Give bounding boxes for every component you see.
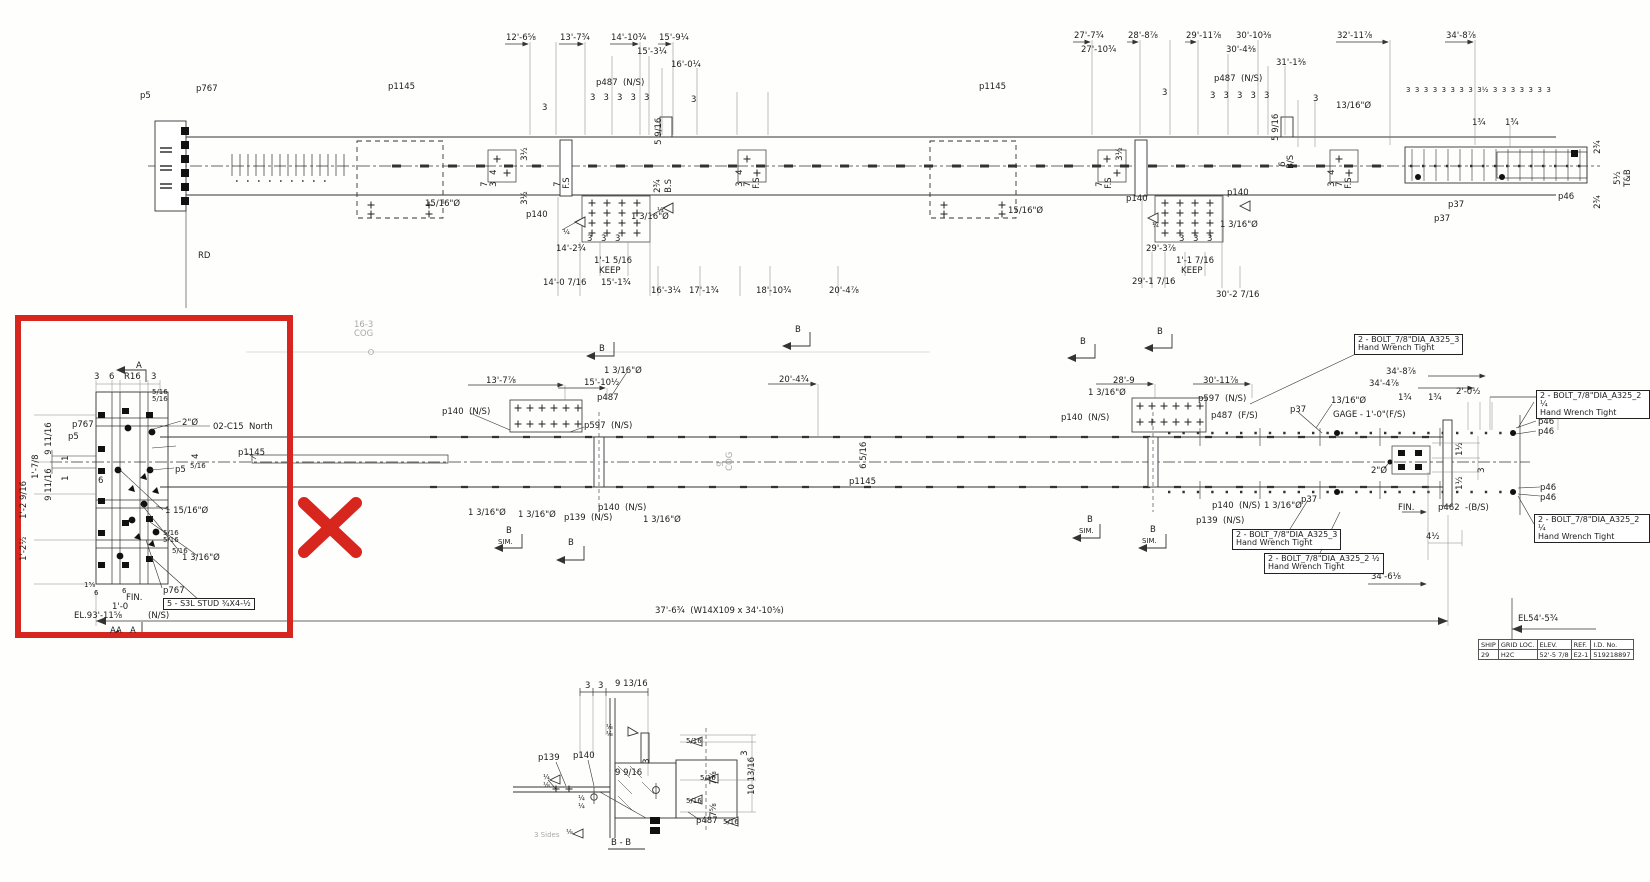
drawing-label: B xyxy=(1080,338,1086,347)
drawing-label: B xyxy=(506,527,512,536)
drawing-label: 13'-7⅞ xyxy=(486,377,516,386)
drawing-label: 34'-4⅞ xyxy=(1369,380,1399,389)
drawing-label: 4 xyxy=(1328,170,1337,175)
callout-label: 5 - S3L STUD ¾X4-½ xyxy=(163,598,255,610)
drawing-label: COG xyxy=(726,452,735,471)
drawing-label: 16'-3¼ xyxy=(651,287,681,296)
drawing-label: R16 xyxy=(124,373,141,382)
drawing-label: FIN. xyxy=(126,594,142,603)
drawing-label: p5 xyxy=(68,433,79,442)
callout-label: 2 - BOLT_7/8"DIA_A325_2 ½ Hand Wrench Ti… xyxy=(1264,553,1384,574)
drawing-label: ⅛ xyxy=(606,731,613,738)
drawing-label: 2¾ xyxy=(654,179,663,193)
drawing-label: p487 (N/S) xyxy=(596,79,644,88)
drawing-linework xyxy=(0,0,1650,882)
drawing-label: 20'-4¾ xyxy=(779,376,809,385)
drawing-label: p140 xyxy=(526,211,548,220)
red-cross-mark xyxy=(304,503,356,552)
drawing-label: AA xyxy=(110,627,122,636)
drawing-label: 13/16"Ø xyxy=(1336,102,1371,111)
drawing-label: p767 xyxy=(72,421,94,430)
drawing-label: F.S xyxy=(563,177,572,189)
drawing-label: p1145 xyxy=(979,83,1006,92)
drawing-label: 1¾ xyxy=(1505,119,1519,128)
drawing-label: 4 xyxy=(490,170,499,175)
drawing-label: F.S xyxy=(1345,177,1354,189)
drawing-label: 3 xyxy=(490,182,499,187)
drawing-label: p487 xyxy=(696,817,718,826)
drawing-label: 5 9/16 xyxy=(1272,114,1281,141)
drawing-label: 15'-10½ xyxy=(584,379,619,388)
drawing-label: 1 3/16"Ø xyxy=(468,509,506,518)
drawing-label: 3 xyxy=(1478,468,1487,473)
drawing-label: 3 Sides xyxy=(534,832,559,839)
drawing-label: p140 (N/S) xyxy=(1061,414,1109,423)
drawing-label: ¼ xyxy=(578,803,585,810)
drawing-label: 1 3/16"Ø xyxy=(1220,221,1258,230)
drawing-label: p37 xyxy=(1448,201,1464,210)
drawing-label: ¼ xyxy=(1152,222,1159,229)
drawing-label: 1 3/16"Ø xyxy=(643,516,681,525)
drawing-label: p767 xyxy=(163,587,185,596)
drawing-label: 3½ xyxy=(1116,147,1125,161)
drawing-label: p46 xyxy=(1540,494,1556,503)
drawing-label: B xyxy=(599,345,605,354)
drawing-label: 2"Ø xyxy=(182,419,198,428)
drawing-label: ⅛ xyxy=(543,782,550,789)
drawing-label: F.S xyxy=(1105,177,1114,189)
drawing-label: B.S xyxy=(665,179,674,193)
drawing-label: 6 xyxy=(94,590,98,597)
drawing-label: p140 (N/S) xyxy=(598,504,646,513)
drawing-label: 1¾ xyxy=(1398,394,1412,403)
drawing-label: p46 xyxy=(1540,484,1556,493)
drawing-label: 3 xyxy=(151,373,156,382)
drawing-label: 13'-7¾ xyxy=(560,34,590,43)
drawing-label: 1 xyxy=(62,476,71,481)
callout-label: 2 - BOLT_7/8"DIA_A325_2 ¼ Hand Wrench Ti… xyxy=(1536,390,1650,419)
drawing-label: 5/16 xyxy=(686,738,702,745)
drawing-label: 1 3/16"Ø xyxy=(1264,502,1302,511)
drawing-label: 3 xyxy=(598,682,603,691)
drawing-label: 16'-0¼ xyxy=(671,61,701,70)
drawing-label: 14'-2¾ xyxy=(556,245,586,254)
drawing-label: p597 (N/S) xyxy=(584,422,632,431)
drawing-label: 3 xyxy=(1207,235,1212,244)
drawing-label: 4 xyxy=(192,454,201,459)
drawing-label: p46 xyxy=(1538,418,1554,427)
drawing-label: 30'-4⅜ xyxy=(1226,46,1256,55)
drawing-label: p140 xyxy=(1126,195,1148,204)
drawing-label: 37'-6¾ (W14X109 x 34'-10⅝) xyxy=(655,607,784,616)
drawing-label: 17'-1¾ xyxy=(689,287,719,296)
drawing-label: 34'-8⅞ xyxy=(1446,32,1476,41)
drawing-label: 1¾ xyxy=(1428,394,1442,403)
drawing-label: p767 xyxy=(196,85,218,94)
drawing-label: 2¾ xyxy=(1594,195,1603,209)
drawing-label: 1'-2½ xyxy=(20,536,29,560)
drawing-label: 2'-0½ xyxy=(1456,388,1480,397)
drawing-label: p597 (N/S) xyxy=(1198,395,1246,404)
drawing-label: p487 (F/S) xyxy=(1211,412,1258,421)
drawing-label: p1145 xyxy=(849,478,876,487)
drawing-label: 5/16 xyxy=(700,775,716,782)
drawing-label: 3½ xyxy=(521,147,530,161)
table-header: REF. xyxy=(1571,640,1591,650)
drawing-label: p37 xyxy=(1290,406,1306,415)
drawing-label: 27'-10¾ xyxy=(1081,46,1116,55)
drawing-label: p1145 xyxy=(238,449,265,458)
drawing-label: 15/16"Ø xyxy=(425,200,460,209)
drawing-label: 5/16 xyxy=(163,537,179,544)
drawing-label: p139 (N/S) xyxy=(1196,517,1244,526)
drawing-label: 3 3 3 3 3 xyxy=(590,94,649,103)
drawing-label: KEEP xyxy=(1181,267,1202,276)
drawing-label: 1'-1 5/16 xyxy=(594,257,632,266)
drawing-label: 32'-11⅞ xyxy=(1337,32,1372,41)
drawing-label: 1 3/16"Ø xyxy=(182,554,220,563)
middle-elevation xyxy=(34,332,1596,660)
drawing-label: p140 xyxy=(1227,189,1249,198)
drawing-label: SIM. xyxy=(498,539,513,546)
drawing-label: B xyxy=(1150,526,1156,535)
drawing-label: 3 xyxy=(1193,235,1198,244)
drawing-label: B/S xyxy=(1287,155,1296,169)
drawing-label: p5 xyxy=(140,92,151,101)
callout-label: 2 - BOLT_7/8"DIA_A325_2 ¼ Hand Wrench Ti… xyxy=(1534,514,1650,543)
drawing-label: 4½ xyxy=(1426,533,1440,542)
title-block-table: SHIPGRID LOC.ELEV.REF.I.D. No.29H2C52'-5… xyxy=(1478,639,1634,660)
table-cell: 52'-5 7/8 xyxy=(1537,650,1571,660)
drawing-label: p1145 xyxy=(388,83,415,92)
drawing-label: 1'-7/8 xyxy=(32,454,41,479)
drawing-canvas: p5p767p114515/16"ØRD12'-6⅝13'-7¾14'-10¾1… xyxy=(0,0,1650,882)
drawing-label: ⅛ xyxy=(566,829,573,836)
drawing-label: 5½ xyxy=(1614,171,1623,185)
drawing-label: 1 3/16"Ø xyxy=(1088,389,1126,398)
table-header: GRID LOC. xyxy=(1498,640,1537,650)
table-cell: 519218897 xyxy=(1591,650,1633,660)
drawing-label: 5/16 xyxy=(686,798,702,805)
drawing-label: 02-C15 North xyxy=(213,423,273,432)
drawing-label: 15'-9¼ xyxy=(659,34,689,43)
callout-label: 2 - BOLT_7/8"DIA_A325_3 Hand Wrench Tigh… xyxy=(1232,529,1341,550)
drawing-label: 3 xyxy=(1162,89,1167,98)
drawing-label: COG xyxy=(354,330,373,339)
drawing-label: 5/16 xyxy=(723,819,739,826)
drawing-label: p139 xyxy=(538,754,560,763)
drawing-label: B xyxy=(1157,328,1163,337)
drawing-label: p462 -(B/S) xyxy=(1438,504,1489,513)
drawing-label: 30'-2 7/16 xyxy=(1216,291,1259,300)
drawing-label: p46 xyxy=(1558,193,1574,202)
drawing-label: 5/16 xyxy=(190,463,206,470)
drawing-label: 1 3/16"Ø xyxy=(631,213,669,222)
drawing-label: 6 xyxy=(98,477,103,486)
table-cell: E2-1 xyxy=(1571,650,1591,660)
drawing-label: SIM. xyxy=(1142,538,1157,545)
drawing-label: 34'-6⅛ xyxy=(1371,573,1401,582)
drawing-label: 7⅝ xyxy=(710,803,719,817)
drawing-label: B xyxy=(1087,516,1093,525)
drawing-label: 9 9/16 xyxy=(615,769,642,778)
drawing-label: 3 xyxy=(601,235,606,244)
drawing-label: 3½ xyxy=(521,191,530,205)
drawing-label: 15/16"Ø xyxy=(1008,207,1043,216)
drawing-label: 27'-7¾ xyxy=(1074,32,1104,41)
drawing-label: p140 xyxy=(573,752,595,761)
drawing-label: p37 xyxy=(1301,496,1317,505)
drawing-label: A xyxy=(136,362,142,371)
drawing-label: 28'-9 xyxy=(1113,377,1135,386)
drawing-label: SIM. xyxy=(1079,528,1094,535)
drawing-label: 3 xyxy=(587,235,592,244)
drawing-label: T&B xyxy=(1624,169,1633,187)
drawing-label: 3 xyxy=(1313,95,1318,104)
drawing-label: 29'-11⅞ xyxy=(1186,32,1221,41)
table-cell: H2C xyxy=(1498,650,1537,660)
drawing-label: 3 3 3 3 3 3 3 3 3½ 3 3 3 3 3 3 3 xyxy=(1406,87,1551,94)
drawing-label: RD xyxy=(198,252,210,261)
drawing-label: 1'-1 7/16 xyxy=(1176,257,1214,266)
drawing-label: 18'-10¾ xyxy=(756,287,791,296)
drawing-label: 28'-8⅞ xyxy=(1128,32,1158,41)
drawing-label: p487 xyxy=(597,394,619,403)
drawing-label: p37 xyxy=(1434,215,1450,224)
drawing-label: 1½ xyxy=(1456,442,1465,456)
drawing-label: 6 xyxy=(109,373,114,382)
drawing-label: 1 3/16"Ø xyxy=(518,511,556,520)
drawing-label: 30'-11⅞ xyxy=(1203,377,1238,386)
drawing-label: 5 9/16 xyxy=(655,118,664,145)
drawing-label: (N/S) xyxy=(148,612,169,621)
drawing-label: FIN. xyxy=(1398,504,1414,513)
drawing-label: B xyxy=(795,326,801,335)
drawing-label: 1 xyxy=(62,456,71,461)
drawing-label: 3 3 3 3 3 xyxy=(1210,92,1269,101)
drawing-label: 1 3/16"Ø xyxy=(604,367,642,376)
drawing-label: 31'-1⅜ xyxy=(1276,59,1306,68)
drawing-label: 3 xyxy=(615,235,620,244)
drawing-label: 12'-6⅝ xyxy=(506,34,536,43)
drawing-label: 1 15/16"Ø xyxy=(165,507,208,516)
drawing-label: 30'-10⅜ xyxy=(1236,32,1271,41)
table-header: I.D. No. xyxy=(1591,640,1633,650)
table-cell: 29 xyxy=(1479,650,1499,660)
drawing-label: p5 xyxy=(175,466,186,475)
drawing-label: B xyxy=(568,539,574,548)
table-header: SHIP xyxy=(1479,640,1499,650)
drawing-label: 10 13/16 xyxy=(748,757,757,795)
drawing-label: 4 xyxy=(736,170,745,175)
drawing-label: p139 (N/S) xyxy=(564,514,612,523)
drawing-label: 9 11/16 xyxy=(45,468,54,501)
drawing-label: 15'-1¾ xyxy=(601,279,631,288)
drawing-label: A xyxy=(130,627,136,636)
drawing-label: B - B xyxy=(611,839,631,848)
drawing-label: 14'-0 7/16 xyxy=(543,279,586,288)
drawing-label: 3 xyxy=(1179,235,1184,244)
drawing-label: 9 13/16 xyxy=(615,680,648,689)
drawing-label: 3 xyxy=(691,96,696,105)
drawing-label: p487 (N/S) xyxy=(1214,75,1262,84)
drawing-label: 6 5/16 xyxy=(860,442,869,469)
drawing-label: 29'-1 7/16 xyxy=(1132,278,1175,287)
drawing-label: 1½ xyxy=(1456,476,1465,490)
drawing-label: 34'-8⅞ xyxy=(1386,368,1416,377)
drawing-label: 2"Ø xyxy=(1371,467,1387,476)
drawing-label: p140 (N/S) xyxy=(442,408,490,417)
table-header: ELEV. xyxy=(1537,640,1571,650)
drawing-label: 5/16 xyxy=(152,396,168,403)
drawing-label: p46 xyxy=(1538,428,1554,437)
drawing-label: GAGE - 1'-0"(F/S) xyxy=(1333,411,1406,420)
drawing-label: 20'-4⅞ xyxy=(829,287,859,296)
drawing-label: 3 xyxy=(542,104,547,113)
drawing-label: 14'-10¾ xyxy=(611,34,646,43)
drawing-label: KEEP xyxy=(599,267,620,276)
drawing-label: F.S xyxy=(753,177,762,189)
callout-label: 2 - BOLT_7/8"DIA_A325_3 Hand Wrench Tigh… xyxy=(1354,334,1463,355)
drawing-label: ¼ xyxy=(563,229,570,236)
drawing-label: EL.93'-11⅝ xyxy=(74,612,122,621)
top-elevation xyxy=(148,40,1600,308)
drawing-label: 3 xyxy=(741,751,750,756)
red-highlight-box xyxy=(18,318,290,635)
drawing-label: p140 (N/S) xyxy=(1212,502,1260,511)
drawing-label: 3 xyxy=(643,759,652,764)
drawing-label: 1'-2 9/16 xyxy=(20,481,29,519)
drawing-label: EL54'-5¾ xyxy=(1518,615,1558,624)
drawing-label: 1¾ xyxy=(1472,119,1486,128)
drawing-label: 13/16"Ø xyxy=(1331,397,1366,406)
drawing-label: 2¾ xyxy=(1594,140,1603,154)
drawing-label: 15'-3¼ xyxy=(637,48,667,57)
drawing-label: 3 xyxy=(94,373,99,382)
drawing-label: 3 xyxy=(585,682,590,691)
drawing-label: 9 11/16 xyxy=(45,422,54,455)
drawing-label: 29'-3⅞ xyxy=(1146,245,1176,254)
drawing-label: 6 xyxy=(122,588,126,595)
